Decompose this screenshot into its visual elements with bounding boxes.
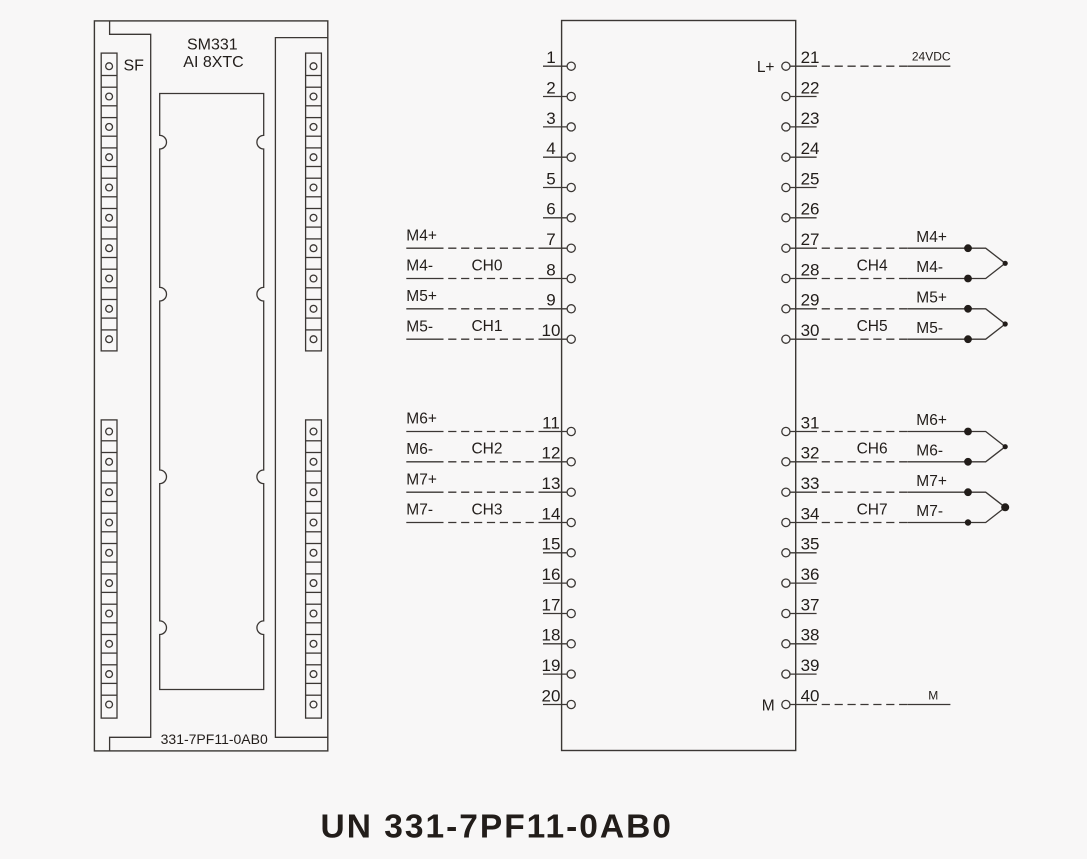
svg-text:22: 22 — [801, 78, 820, 97]
svg-text:5: 5 — [546, 169, 555, 188]
svg-text:33: 33 — [801, 474, 820, 493]
svg-text:21: 21 — [801, 48, 820, 67]
svg-text:M4+: M4+ — [916, 229, 947, 246]
svg-text:SM331: SM331 — [187, 37, 238, 54]
svg-text:4: 4 — [546, 139, 555, 158]
svg-text:32: 32 — [801, 444, 820, 463]
svg-text:31: 31 — [801, 413, 820, 432]
svg-text:35: 35 — [801, 535, 820, 554]
svg-text:L+: L+ — [757, 59, 775, 76]
svg-text:CH2: CH2 — [471, 441, 502, 458]
svg-text:13: 13 — [542, 474, 561, 493]
svg-text:AI 8XTC: AI 8XTC — [183, 54, 243, 71]
svg-text:M7+: M7+ — [406, 471, 437, 488]
svg-text:M7+: M7+ — [916, 473, 947, 490]
svg-text:UN 331-7PF11-0AB0: UN 331-7PF11-0AB0 — [321, 809, 673, 846]
svg-text:M: M — [762, 697, 775, 714]
svg-text:9: 9 — [546, 291, 555, 310]
svg-text:14: 14 — [542, 504, 561, 523]
svg-text:331-7PF11-0AB0: 331-7PF11-0AB0 — [161, 731, 268, 747]
svg-text:M6+: M6+ — [916, 412, 947, 429]
svg-text:CH1: CH1 — [471, 318, 502, 335]
svg-text:M4-: M4- — [406, 258, 433, 275]
svg-text:16: 16 — [542, 565, 561, 584]
svg-text:23: 23 — [801, 109, 820, 128]
svg-text:M6+: M6+ — [406, 411, 437, 428]
svg-text:CH7: CH7 — [857, 501, 888, 518]
svg-text:1: 1 — [546, 48, 555, 67]
svg-text:10: 10 — [542, 321, 561, 340]
svg-text:12: 12 — [542, 444, 561, 463]
svg-text:24VDC: 24VDC — [912, 49, 951, 63]
svg-text:SF: SF — [124, 57, 145, 74]
svg-text:CH3: CH3 — [471, 501, 502, 518]
svg-text:M7-: M7- — [916, 503, 943, 520]
svg-text:18: 18 — [542, 626, 561, 645]
svg-text:26: 26 — [801, 200, 820, 219]
svg-text:29: 29 — [801, 291, 820, 310]
svg-text:38: 38 — [801, 626, 820, 645]
svg-text:M6-: M6- — [406, 441, 433, 458]
svg-text:8: 8 — [546, 260, 555, 279]
svg-text:M5-: M5- — [406, 318, 433, 335]
svg-text:6: 6 — [546, 200, 555, 219]
svg-text:25: 25 — [801, 169, 820, 188]
svg-text:M6-: M6- — [916, 443, 943, 460]
svg-text:34: 34 — [801, 504, 820, 523]
svg-text:37: 37 — [801, 595, 820, 614]
svg-text:CH4: CH4 — [857, 257, 888, 274]
svg-text:2: 2 — [546, 78, 555, 97]
svg-text:M7-: M7- — [406, 502, 433, 519]
svg-text:20: 20 — [542, 686, 561, 705]
svg-text:15: 15 — [542, 535, 561, 554]
svg-text:24: 24 — [801, 139, 820, 158]
svg-text:39: 39 — [801, 656, 820, 675]
svg-text:CH6: CH6 — [857, 441, 888, 458]
svg-text:27: 27 — [801, 230, 820, 249]
svg-text:40: 40 — [801, 686, 820, 705]
svg-text:36: 36 — [801, 565, 820, 584]
svg-text:CH5: CH5 — [857, 318, 888, 335]
svg-text:7: 7 — [546, 230, 555, 249]
svg-text:30: 30 — [801, 321, 820, 340]
svg-text:M4+: M4+ — [406, 227, 437, 244]
svg-text:M: M — [928, 689, 938, 703]
svg-text:CH0: CH0 — [471, 257, 502, 274]
svg-text:M5-: M5- — [916, 320, 943, 337]
svg-text:3: 3 — [546, 109, 555, 128]
svg-text:17: 17 — [542, 595, 561, 614]
svg-text:11: 11 — [542, 413, 560, 432]
svg-text:M4-: M4- — [916, 259, 943, 276]
svg-text:28: 28 — [801, 260, 820, 279]
svg-text:M5+: M5+ — [406, 288, 437, 305]
svg-text:19: 19 — [542, 656, 561, 675]
svg-text:M5+: M5+ — [916, 290, 947, 307]
